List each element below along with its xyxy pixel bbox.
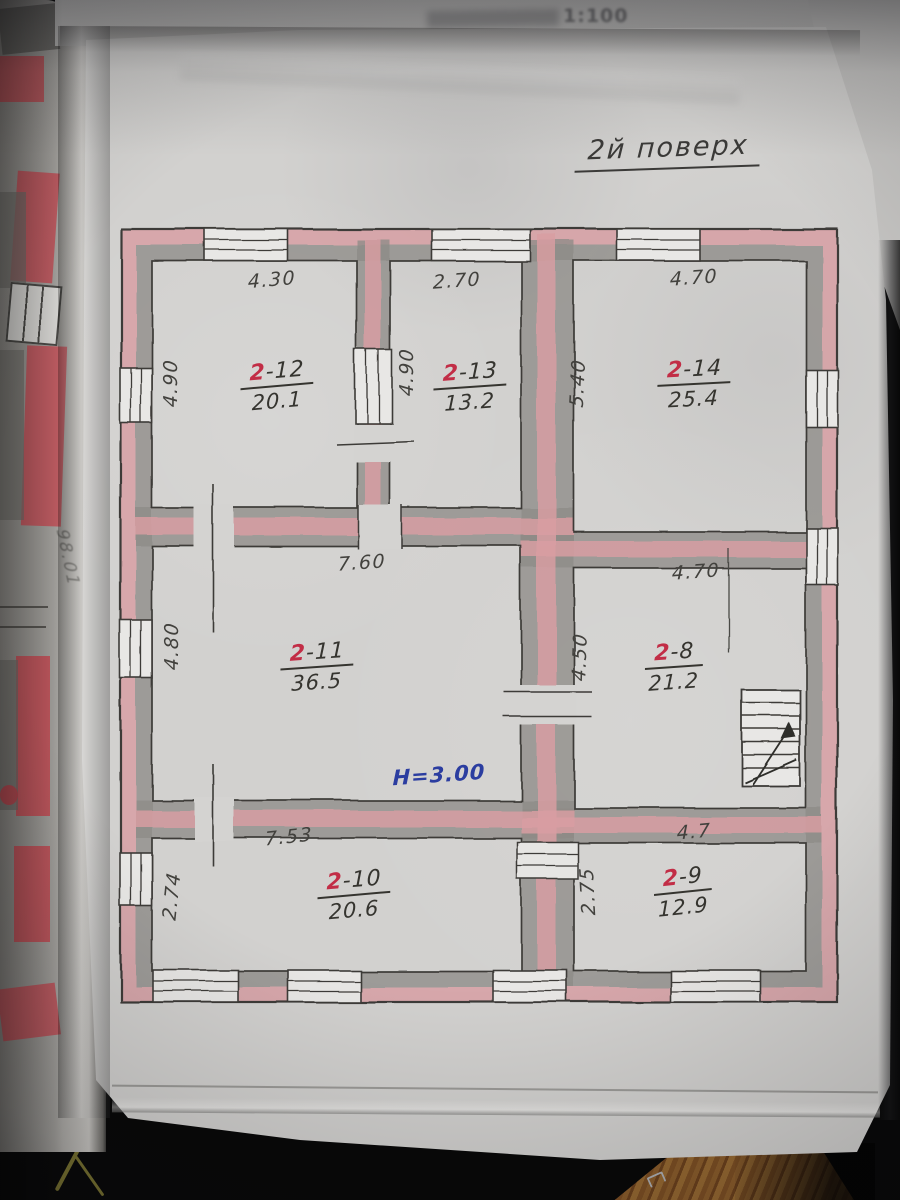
- floor-plan-drawing: [0, 0, 900, 1200]
- book-gutter-shadow: [878, 240, 900, 1120]
- photo-scene: 98.01 1:100: [0, 0, 900, 1200]
